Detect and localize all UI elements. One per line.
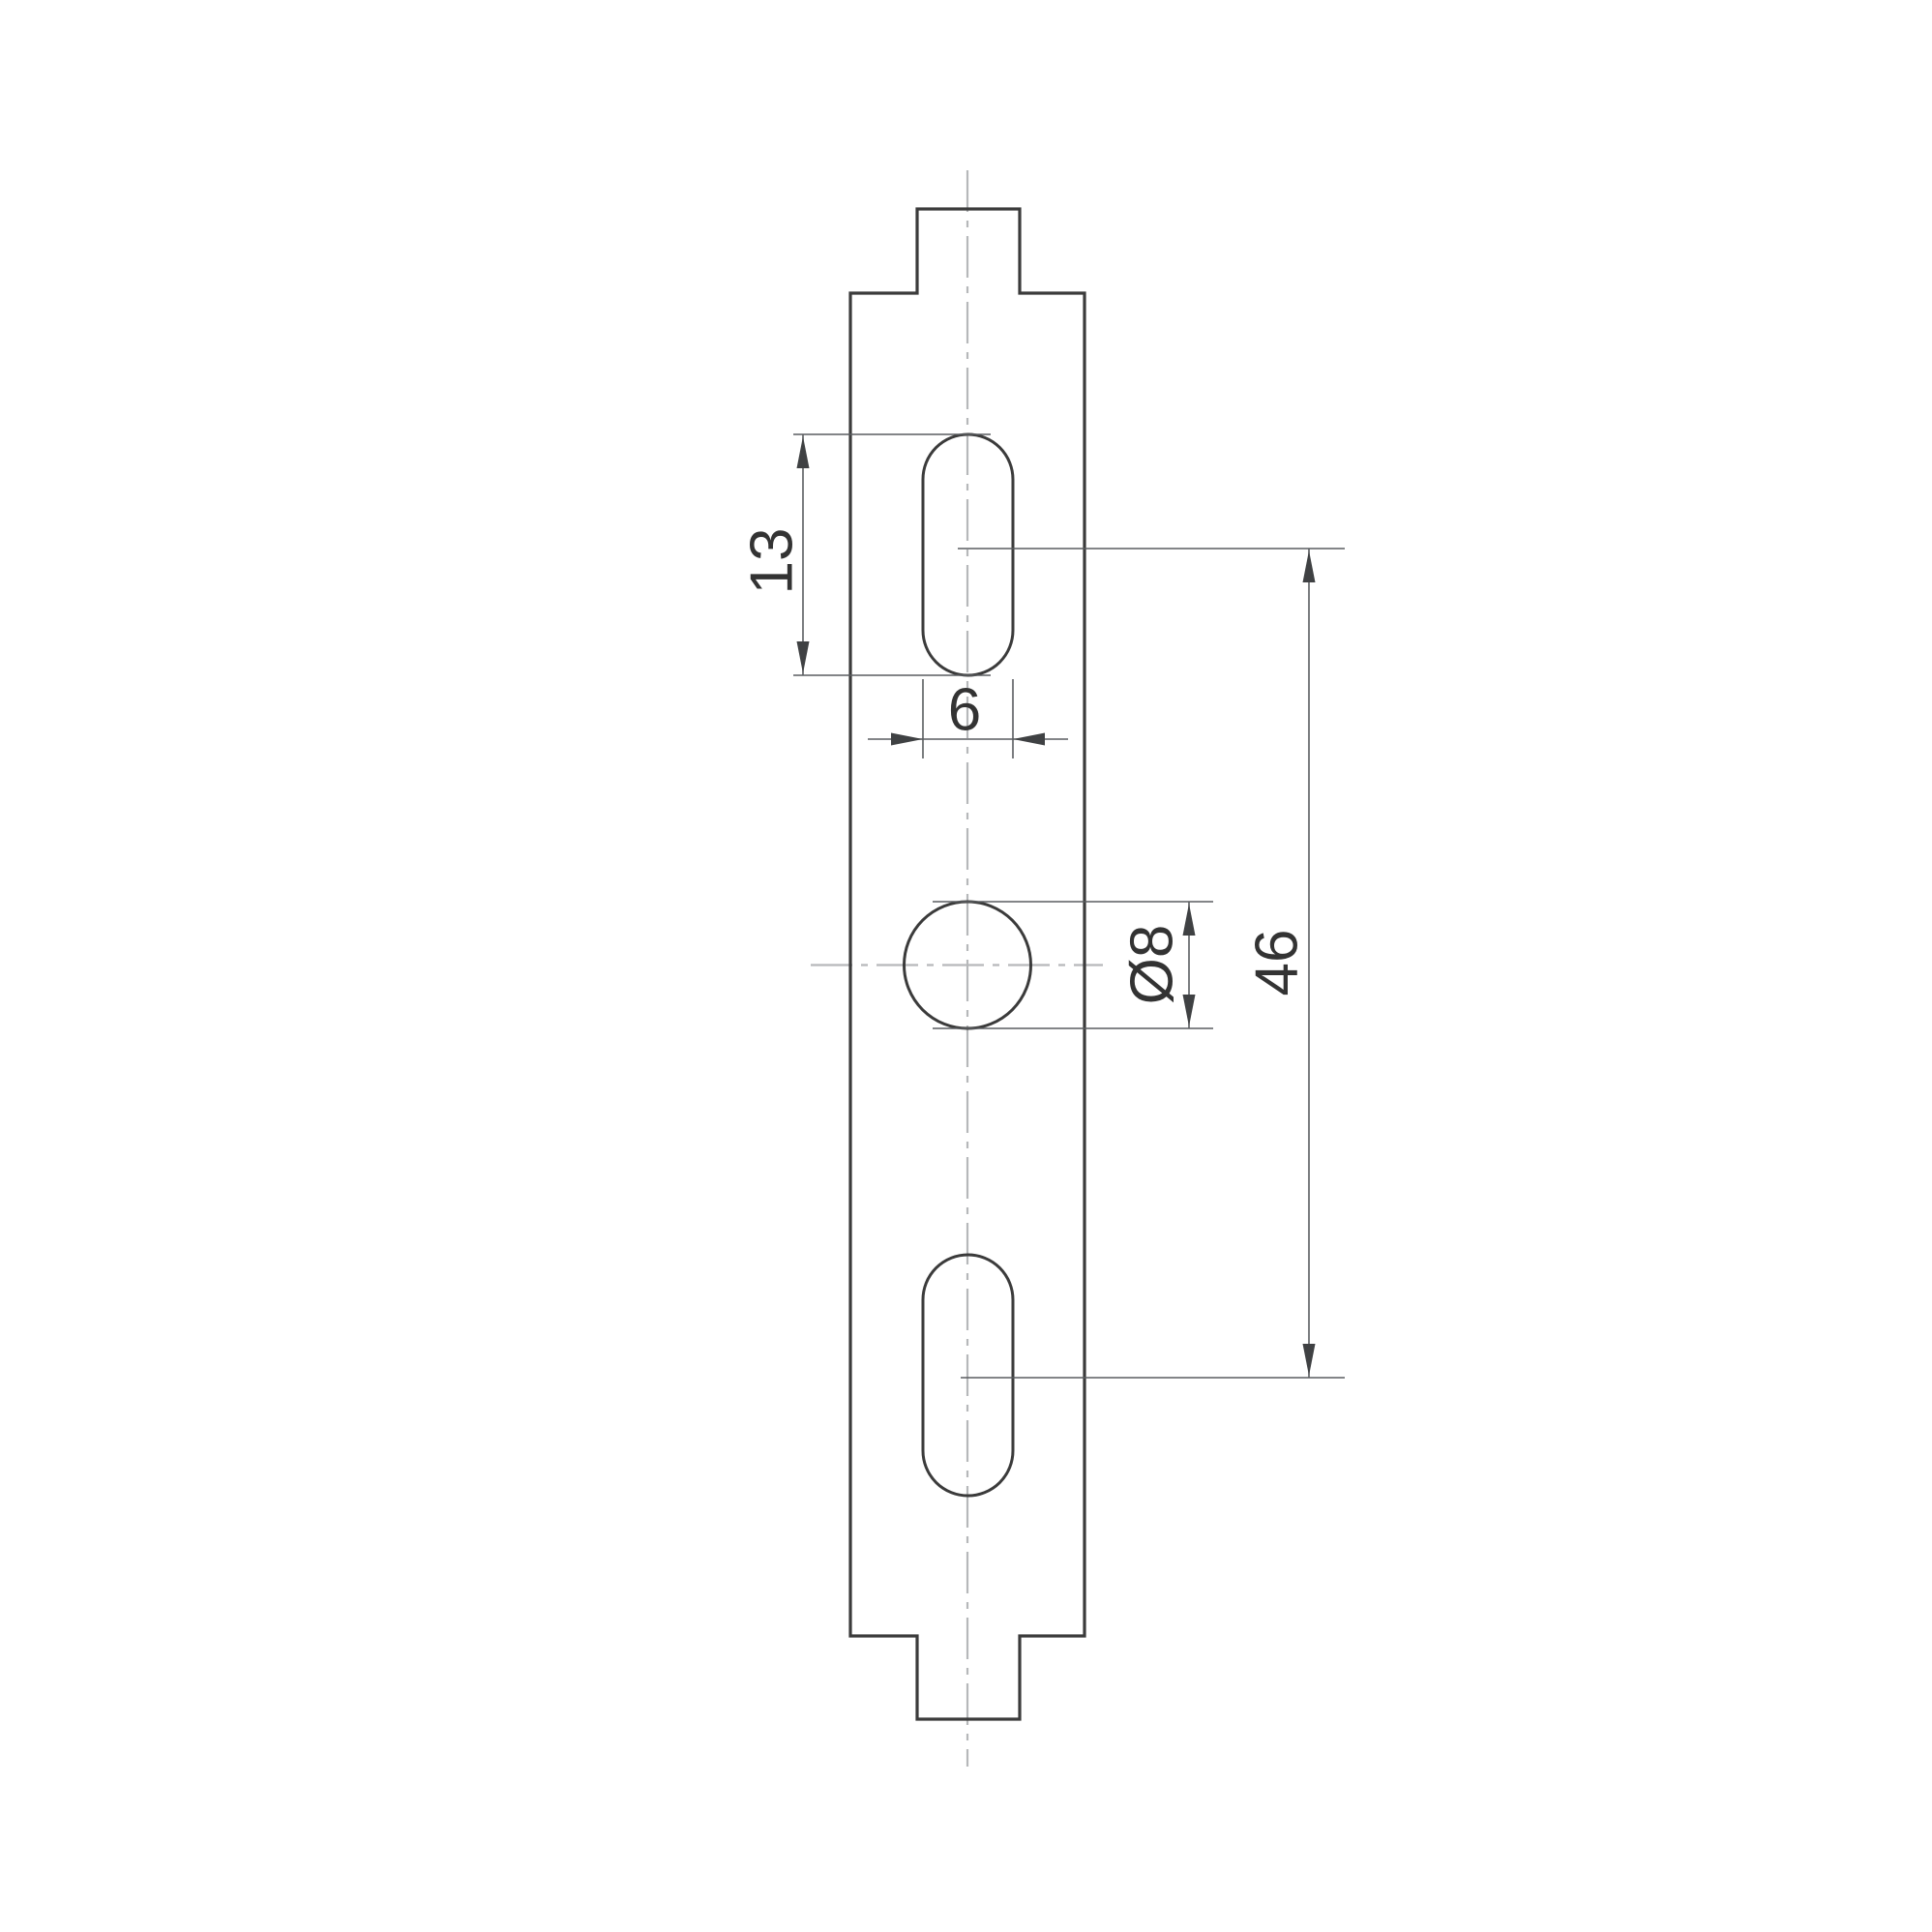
- arrowhead-down-icon: [797, 641, 810, 673]
- dimension-label-slot-length: 13: [739, 528, 806, 595]
- centerlines: [811, 170, 1103, 1767]
- dimension-label-slot-width: 6: [948, 677, 981, 744]
- dimension-label-hole-diameter: Ø8: [1119, 925, 1186, 1005]
- dimension-label-slot-center-distance: 46: [1244, 930, 1311, 996]
- dimension-slot-length: 13: [739, 434, 992, 675]
- arrowhead-right-icon: [891, 733, 923, 746]
- dimension-slot-width: 6: [868, 677, 1068, 759]
- arrowhead-up-icon: [1303, 550, 1316, 582]
- arrowhead-up-icon: [797, 436, 810, 468]
- arrowhead-left-icon: [1013, 733, 1045, 746]
- drawing-canvas: 13 6 Ø8 46: [0, 0, 1932, 1932]
- arrowhead-down-icon: [1303, 1344, 1316, 1376]
- technical-drawing: 13 6 Ø8 46: [0, 0, 1932, 1932]
